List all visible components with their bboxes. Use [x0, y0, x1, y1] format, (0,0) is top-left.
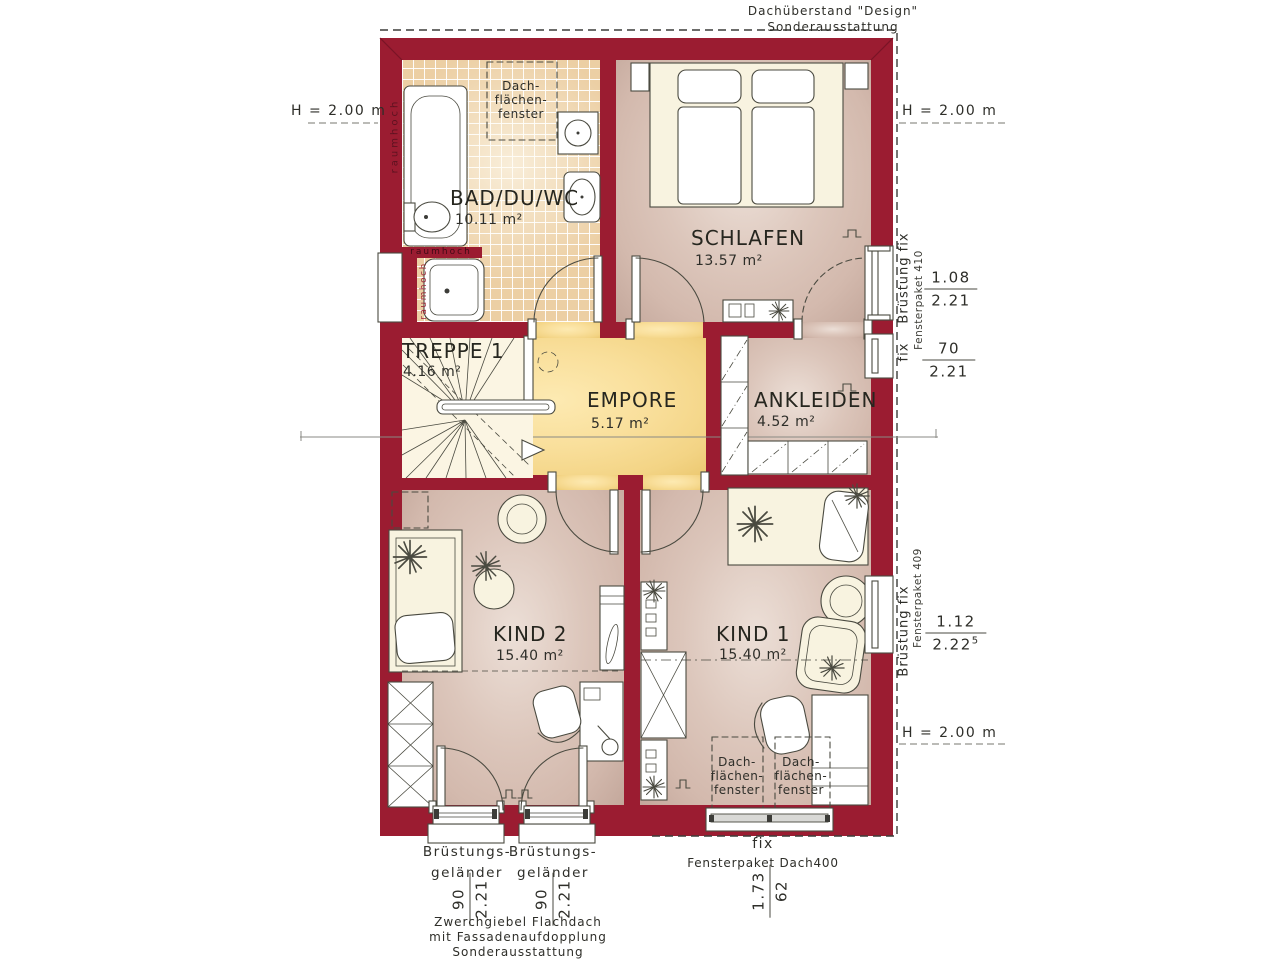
window-niche-left: [378, 253, 402, 322]
room-area-kind2: 15.40 m²: [496, 648, 564, 664]
dimension-roof-window: 1.73 62: [750, 864, 791, 917]
plan-linework: [0, 0, 1280, 960]
window-label-bruestung-fix-kind1: Brüstung fix: [897, 585, 912, 676]
door-bad: [528, 256, 602, 339]
raumhoch-label-shower-side: raumhoch: [419, 262, 429, 320]
skylight-label-kind1-b: Dach- flächen- fenster: [775, 755, 827, 797]
window-package-409: Fensterpaket 409: [912, 548, 924, 648]
raumhoch-label-shower-top: raumhoch: [410, 247, 472, 257]
room-area-bad: 10.11 m²: [455, 212, 523, 228]
dimension-window-ankleiden: 70 2.21: [922, 340, 975, 381]
wall-corner-miters: [380, 38, 893, 60]
room-label-schlafen: SCHLAFEN: [691, 226, 805, 250]
gable-note: Zwerchgiebel Flachdach mit Fassadenaufdo…: [429, 915, 607, 960]
room-area-kind1: 15.40 m²: [719, 647, 787, 663]
room-area-treppe: 4.16 m²: [403, 364, 461, 380]
room-label-empore: EMPORE: [587, 388, 677, 412]
height-note-right-bottom: H = 2.00 m: [902, 725, 997, 741]
window-label-bruestung-fix-top: Brüstung fix: [897, 232, 912, 323]
room-label-kind1: KIND 1: [716, 622, 790, 646]
dimension-window-kind1: 1.12 2.225: [925, 613, 986, 654]
room-area-empore: 5.17 m²: [591, 416, 649, 432]
skylight-label-bad: Dach- flächen- fenster: [495, 79, 547, 121]
double-bed-icon: [631, 63, 868, 207]
raumhoch-label-left: raumhoch: [390, 99, 401, 174]
passage-ankleiden: [794, 258, 872, 339]
roof-window-dach400: [706, 808, 833, 831]
balcony-door-left: [429, 746, 504, 813]
balcony-door-right: [519, 746, 594, 813]
sideboard-icon: [723, 300, 793, 322]
door-kind2: [548, 472, 618, 554]
room-label-treppe: TREPPE 1: [402, 339, 505, 363]
room-label-ankleiden: ANKLEIDEN: [754, 388, 877, 412]
height-note-left: H = 2.00 m: [291, 103, 386, 119]
floor-plan-upper-storey: Dachüberstand "Design" Sonderausstattung…: [0, 0, 1280, 960]
window-schlafen-right: [865, 246, 893, 320]
shower-icon: [424, 259, 484, 321]
room-area-ankleiden: 4.52 m²: [757, 414, 815, 430]
toilet-icon: [404, 202, 450, 232]
skylight-label-kind1-a: Dach- flächen- fenster: [711, 755, 763, 797]
balcony-window-right: [519, 806, 595, 843]
window-ankleiden-right: [865, 334, 893, 378]
window-package-410: Fensterpaket 410: [913, 250, 925, 350]
window-label-fix-mid: fix: [897, 343, 912, 362]
room-label-bad: BAD/DU/WC: [450, 186, 579, 210]
roof-overhang-note: Dachüberstand "Design" Sonderausstattung: [748, 3, 918, 35]
window-kind1-right: [865, 576, 893, 653]
balcony-window-left: [428, 806, 504, 843]
roof-window-fix-label: fix: [752, 836, 774, 852]
door-schlafen: [626, 256, 704, 339]
door-kind1: [641, 472, 709, 554]
room-area-schlafen: 13.57 m²: [695, 253, 763, 269]
room-label-kind2: KIND 2: [493, 622, 567, 646]
height-note-right-top: H = 2.00 m: [902, 103, 997, 119]
dimension-window-schlafen: 1.08 2.21: [924, 269, 977, 310]
